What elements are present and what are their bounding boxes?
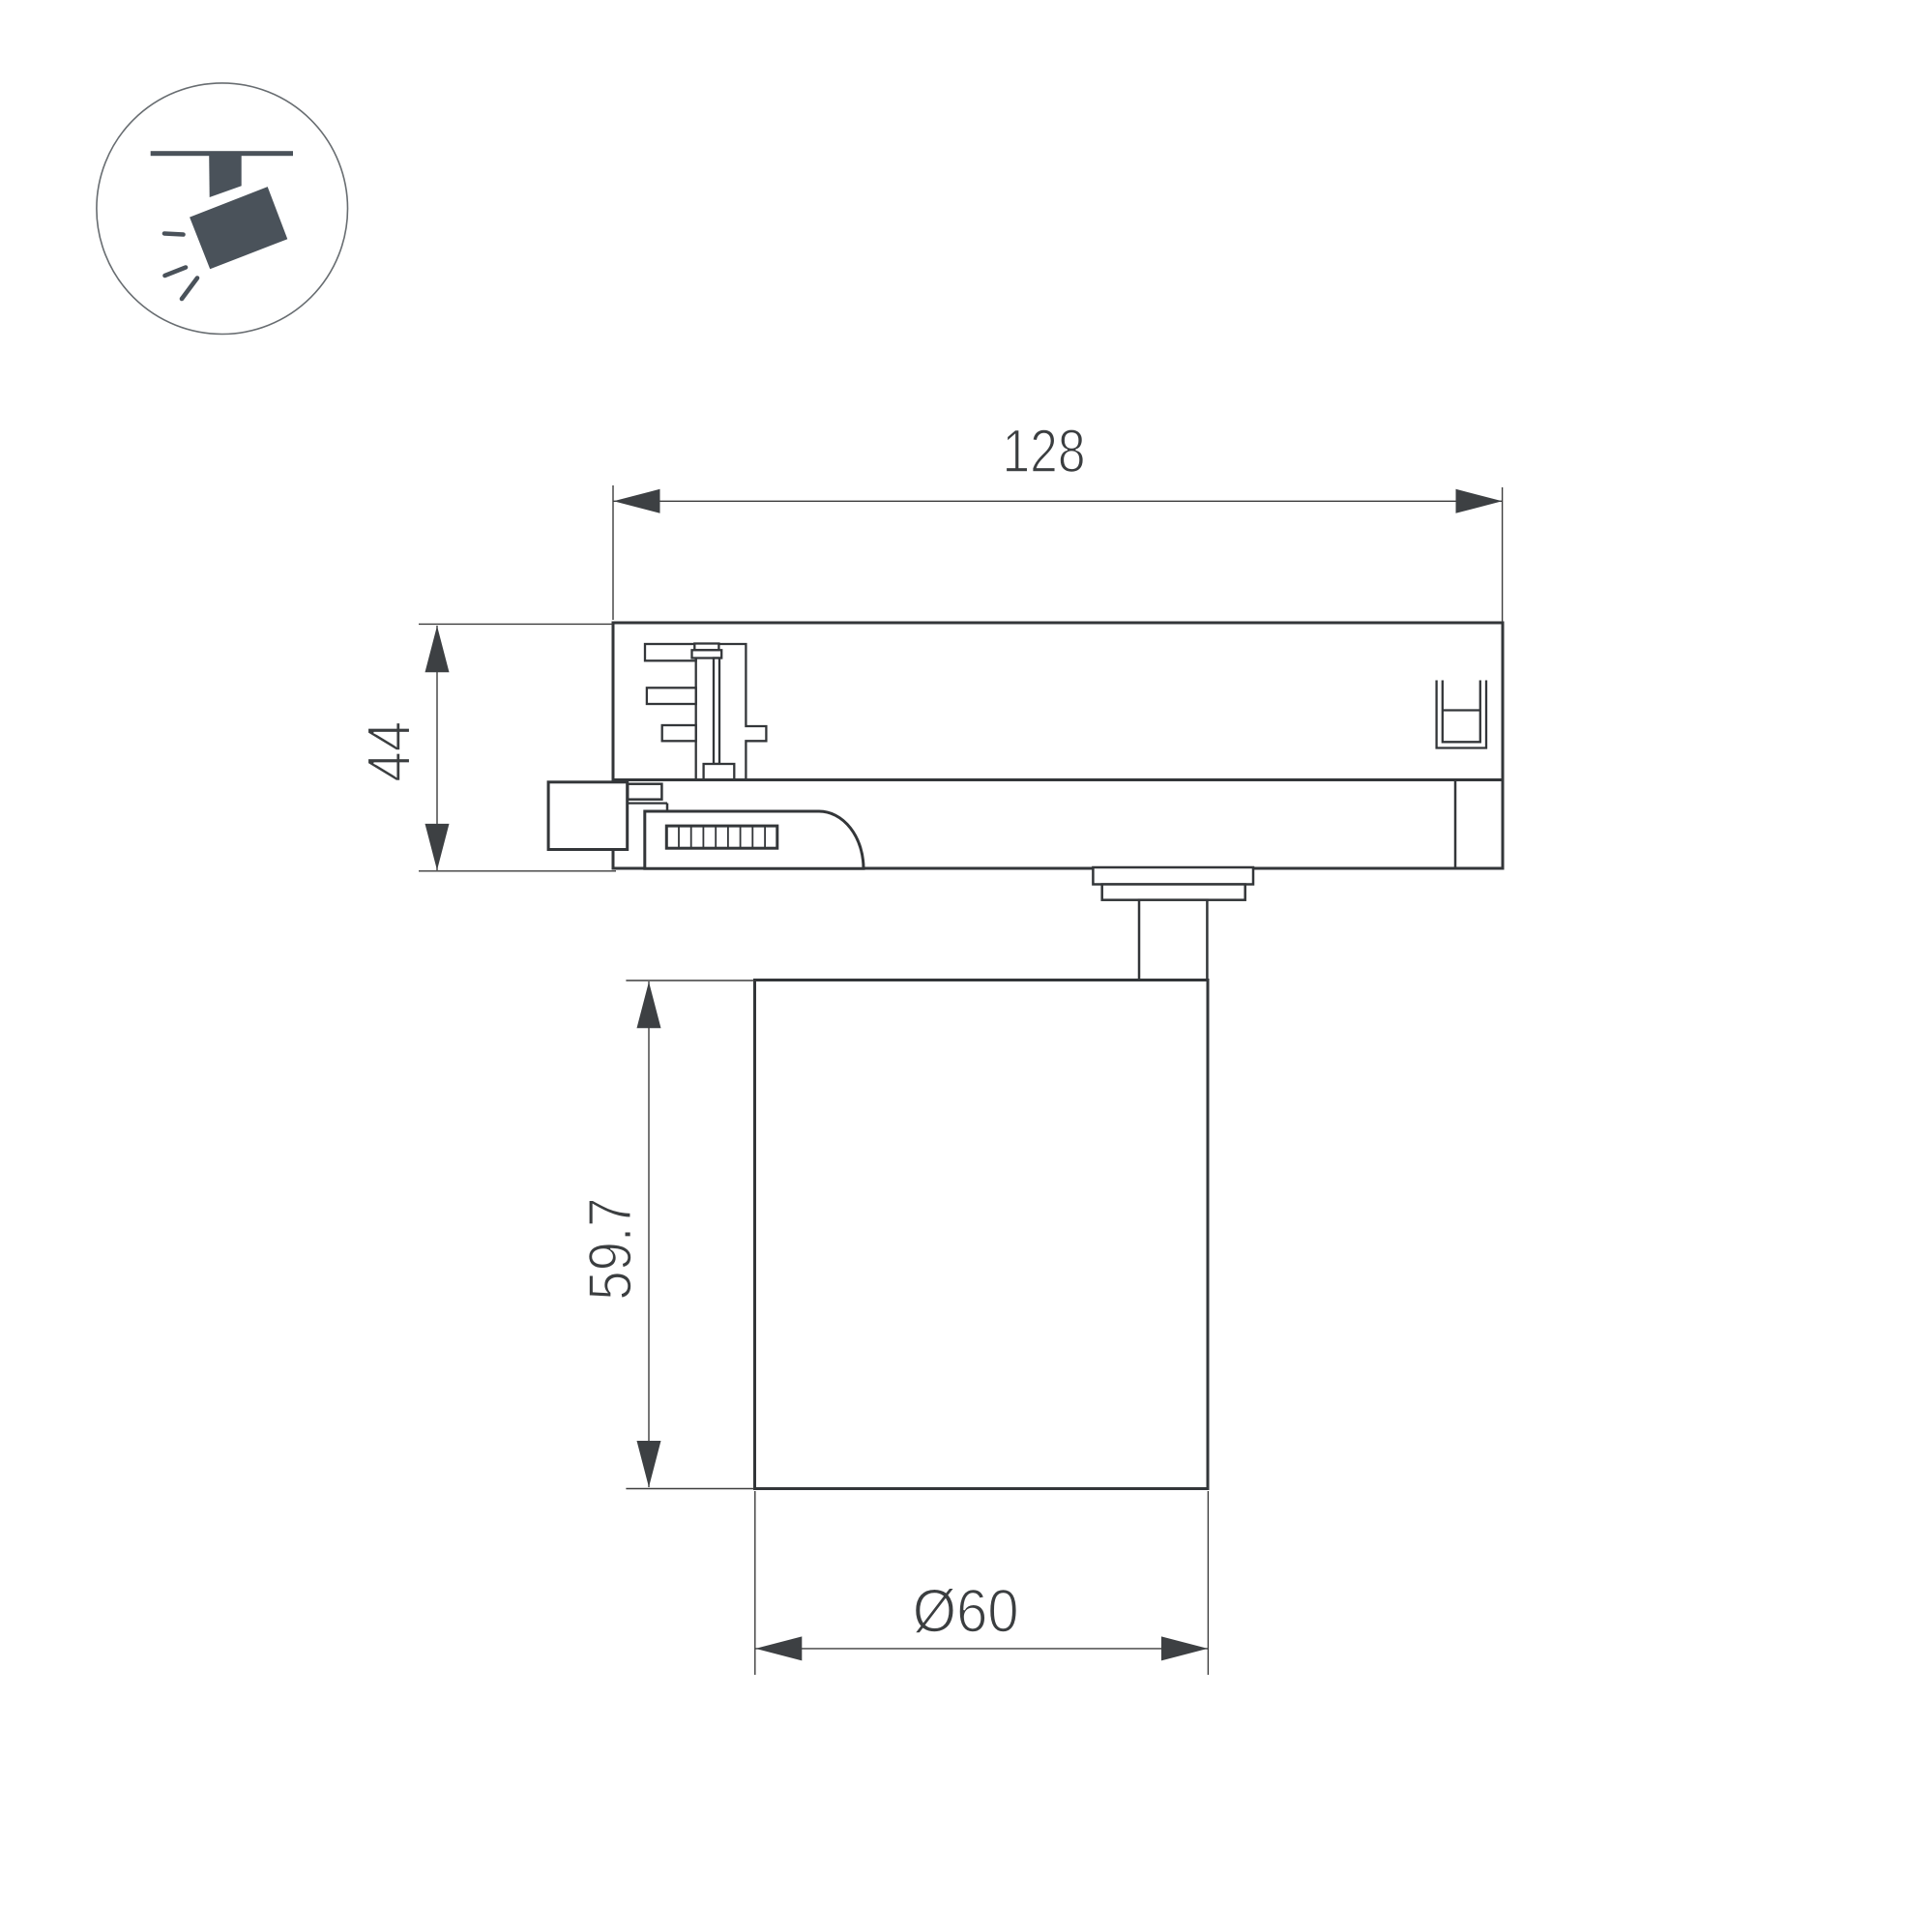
svg-text:44: 44	[356, 721, 424, 782]
svg-text:128: 128	[1003, 418, 1086, 485]
svg-text:59.7: 59.7	[576, 1198, 644, 1301]
svg-text:Ø60: Ø60	[913, 1578, 1019, 1646]
